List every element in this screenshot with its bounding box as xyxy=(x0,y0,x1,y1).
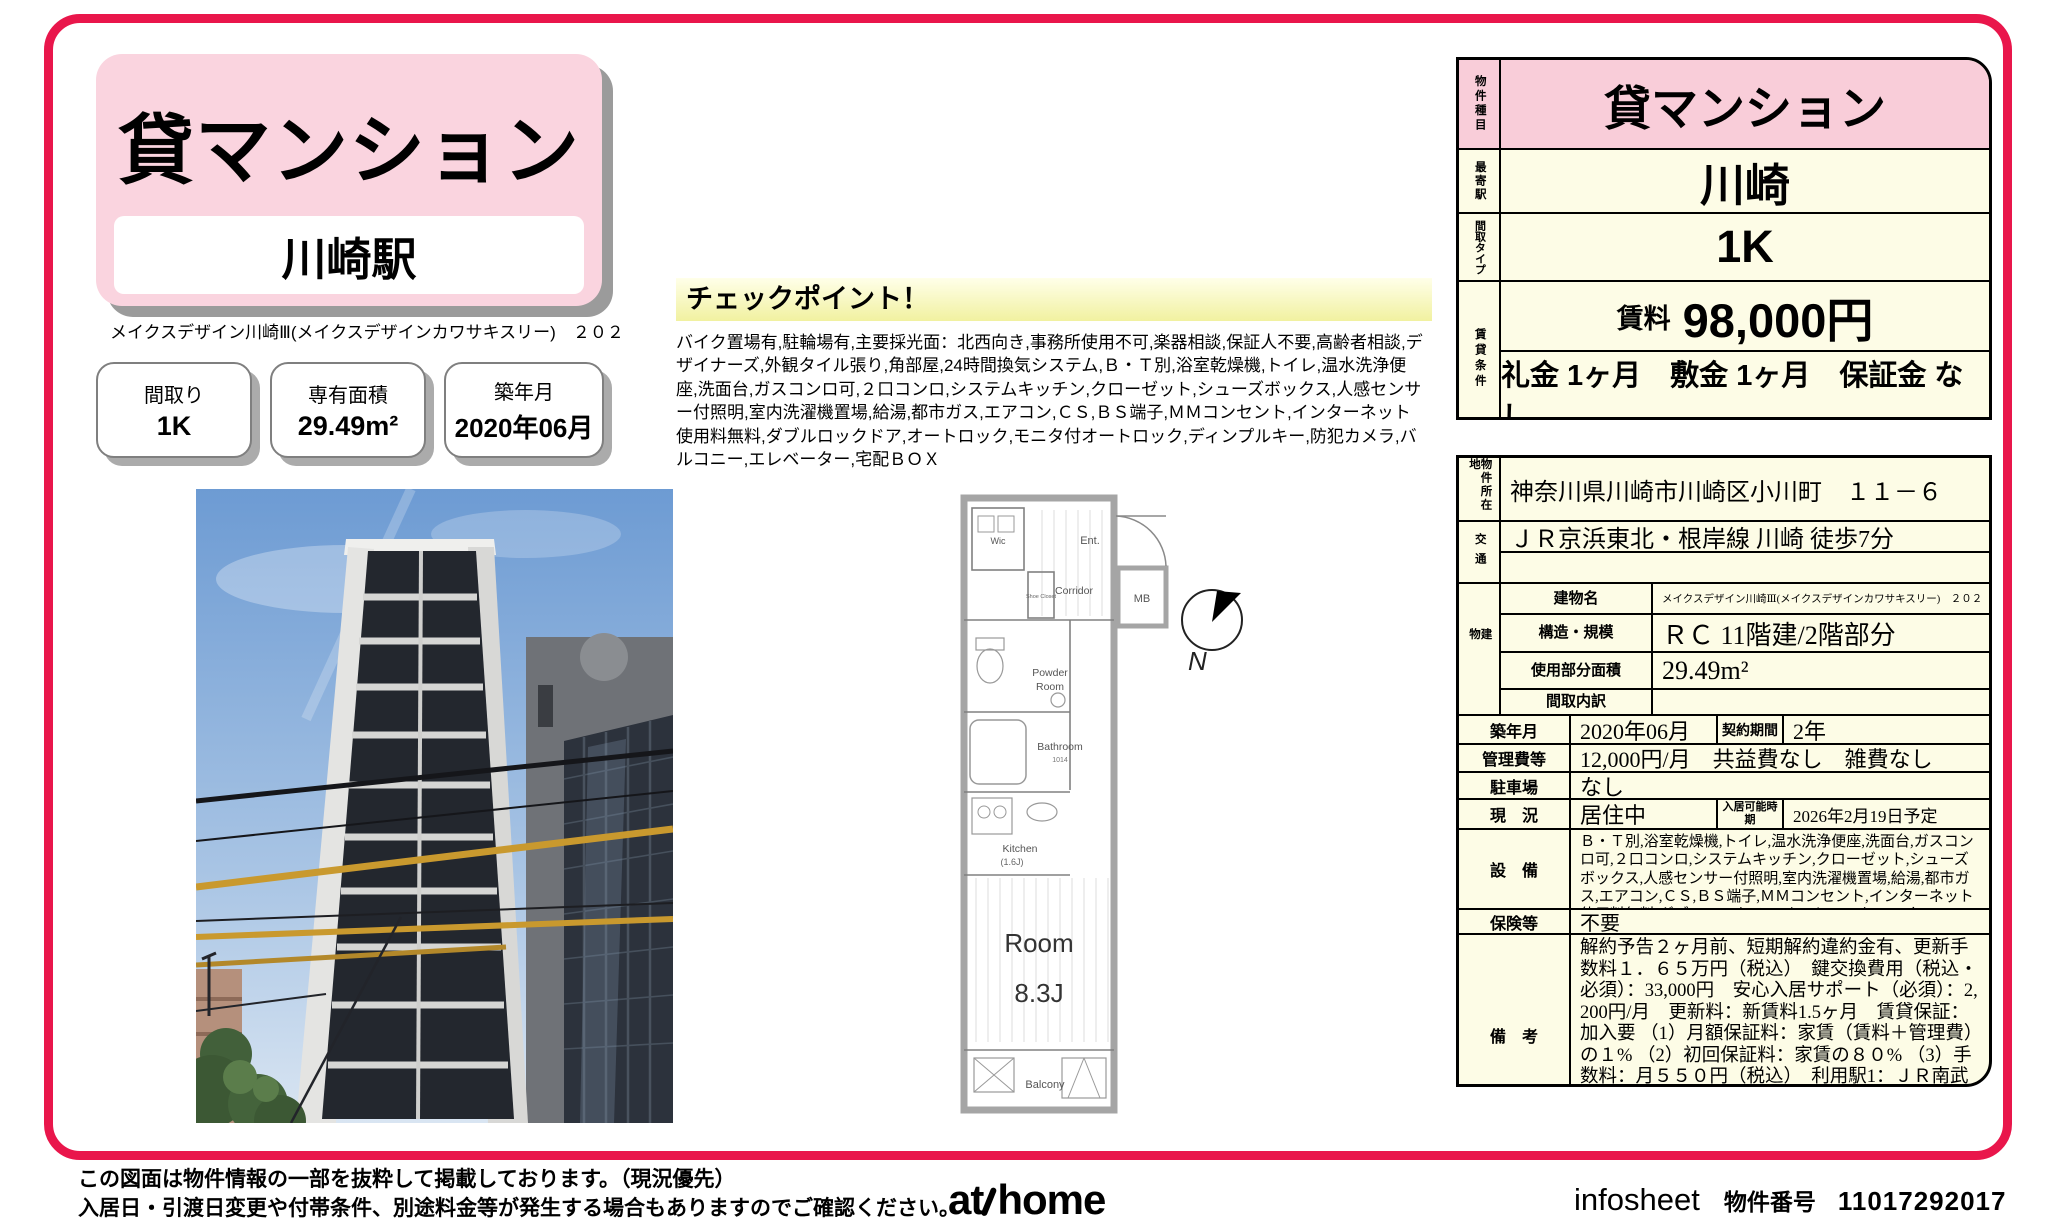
checkpoint-body: バイク置場有,駐輪場有,主要採光面：北西向き,事務所使用不可,楽器相談,保証人不… xyxy=(676,331,1424,472)
layout-detail-value xyxy=(1653,690,1989,714)
spec-box-area: 専有面積 29.49m² xyxy=(270,362,426,458)
spec-value: 1K xyxy=(157,411,192,442)
structure-value: ＲＣ 11階建/2階部分 xyxy=(1653,615,1989,651)
logo-home: home xyxy=(997,1176,1105,1222)
summary-table: 物件種目 貸マンション 最寄駅 川崎 間取タイプ 1K 賃貸条件 賃料 98,0… xyxy=(1456,57,1992,420)
row-notes: 備 考 解約予告２ヶ月前、短期解約違約金有、更新手数料１．６５万円（税込） 鍵交… xyxy=(1459,933,1989,1087)
floorplan-kitchen-label: Kitchen xyxy=(1002,843,1037,855)
disclaimer-line-2: 入居日・引渡日変更や付帯条件、別途料金等が発生する場合もありますのでご確認くださ… xyxy=(78,1195,960,1222)
access-line-2 xyxy=(1501,553,1989,582)
row-address: 物件所在地 神奈川県川崎市川崎区小川町 １１－６ xyxy=(1459,458,1989,520)
spec-label: 専有面積 xyxy=(308,379,388,408)
row-used-area: 使用部分面積 29.49m² xyxy=(1501,651,1989,688)
summary-type-label-cell: 物件種目 xyxy=(1459,60,1501,148)
summary-rent-row: 賃料 98,000円 xyxy=(1501,280,1989,350)
row-layout-detail: 間取内訳 xyxy=(1501,688,1989,714)
building-name-value: メイクスデザイン川崎Ⅲ(メイクスデザインカワサキスリー) ２０２ xyxy=(1653,584,1989,613)
summary-station-value: 川崎 xyxy=(1501,148,1989,212)
row-equipment: 設 備 Ｂ・Ｔ別,浴室乾燥機,トイレ,温水洗浄便座,洗面台,ガスコンロ可,２口コ… xyxy=(1459,828,1989,908)
row-building-group: 建物 建物名 メイクスデザイン川崎Ⅲ(メイクスデザインカワサキスリー) ２０２ … xyxy=(1459,582,1989,714)
floorplan: MB Wic Shoe xyxy=(950,480,1260,1128)
floorplan-bathroom-label: Bathroom xyxy=(1037,741,1083,753)
notes-label: 備 考 xyxy=(1459,935,1571,1087)
summary-terms-label: 賃貸条件 xyxy=(1473,328,1485,390)
spec-value: 29.49m² xyxy=(298,411,399,442)
status-label: 現 況 xyxy=(1459,800,1571,828)
floorplan-entrance-label: Ent. xyxy=(1080,535,1100,547)
athome-logo: at home xyxy=(948,1176,1105,1222)
disclaimer-line-1: この図面は物件情報の一部を抜粋して掲載しております。（現況優先） xyxy=(78,1166,960,1195)
summary-layout-label-cell: 間取タイプ xyxy=(1459,212,1501,280)
rent-label: 賃料 xyxy=(1617,297,1671,336)
floorplan-kitchen-size: (1.6J) xyxy=(1000,857,1023,867)
building-photo xyxy=(196,489,673,1123)
equipment-value: Ｂ・Ｔ別,浴室乾燥機,トイレ,温水洗浄便座,洗面台,ガスコンロ可,２口コンロ,シ… xyxy=(1571,830,1989,908)
notes-value: 解約予告２ヶ月前、短期解約違約金有、更新手数料１．６５万円（税込） 鍵交換費用（… xyxy=(1571,935,1989,1087)
station-box: 川崎駅 xyxy=(114,216,584,294)
address-label: 物件所在地 xyxy=(1468,458,1491,520)
spec-label: 間取り xyxy=(144,379,204,408)
movein-value: 2026年2月19日予定 xyxy=(1784,800,1989,828)
building-group-label: 建物 xyxy=(1468,584,1491,714)
floorplan-room-label: Room xyxy=(1004,928,1073,958)
summary-terms-label-cell: 賃貸条件 xyxy=(1459,280,1501,420)
floorplan-shoe-closet-label: Shoe Closet xyxy=(1026,594,1056,600)
row-access: 交通 ＪＲ京浜東北・根岸線 川崎 徒歩7分 xyxy=(1459,520,1989,582)
spec-box-layout: 間取り 1K xyxy=(96,362,252,458)
footer-disclaimer: この図面は物件情報の一部を抜粋して掲載しております。（現況優先） 入居日・引渡日… xyxy=(78,1166,960,1222)
summary-layout-value: 1K xyxy=(1501,212,1989,280)
infosheet-wordmark: infosheet xyxy=(1574,1182,1700,1218)
property-number-group: 物件番号 11017292017 xyxy=(1722,1183,2015,1222)
floorplan-room-size: 8.3J xyxy=(1014,978,1063,1008)
floorplan-wic-label: Wic xyxy=(991,536,1006,546)
compass-n-label: N xyxy=(1188,646,1207,676)
summary-type-label: 物件種目 xyxy=(1473,75,1485,133)
parking-value: なし xyxy=(1571,773,1989,798)
property-infosheet: 貸マンション 川崎駅 メイクスデザイン川崎Ⅲ(メイクスデザインカワサキスリー) … xyxy=(0,0,2056,1222)
logo-at: at xyxy=(948,1176,983,1222)
row-built: 築年月 2020年06月 契約期間 2年 xyxy=(1459,714,1989,743)
floorplan-powder-label-1: Powder xyxy=(1032,667,1068,679)
floorplan-bathroom-size: 1014 xyxy=(1052,757,1068,764)
used-area-label: 使用部分面積 xyxy=(1501,653,1653,688)
infosheet-footer: infosheet 物件番号 11017292017 xyxy=(1574,1182,2014,1222)
checkpoint-title: チェックポイント！ xyxy=(676,278,1432,321)
compass-icon: N xyxy=(1182,590,1242,676)
contract-label: 契約期間 xyxy=(1716,716,1784,743)
property-category-title: 貸マンション xyxy=(96,64,602,224)
row-structure: 構造・規模 ＲＣ 11階建/2階部分 xyxy=(1501,613,1989,651)
used-area-value: 29.49m² xyxy=(1653,653,1989,688)
row-fees: 管理費等 12,000円/月 共益費なし 雑費なし xyxy=(1459,743,1989,771)
status-value: 居住中 xyxy=(1571,800,1716,828)
floorplan-corridor-label: Corridor xyxy=(1055,585,1093,597)
row-building-name: 建物名 メイクスデザイン川崎Ⅲ(メイクスデザインカワサキスリー) ２０２ xyxy=(1501,584,1989,613)
address-value: 神奈川県川崎市川崎区小川町 １１－６ xyxy=(1501,458,1989,520)
summary-station-label: 最寄駅 xyxy=(1473,161,1485,202)
contract-value: 2年 xyxy=(1784,716,1989,743)
property-number-label: 物件番号 xyxy=(1724,1183,1816,1217)
movein-label: 入居可能時期 xyxy=(1716,800,1784,828)
fees-label: 管理費等 xyxy=(1459,745,1571,771)
row-insurance: 保険等 不要 xyxy=(1459,908,1989,933)
property-number-value: 11017292017 xyxy=(1838,1186,2007,1217)
structure-label: 構造・規模 xyxy=(1501,615,1653,651)
station-name: 川崎駅 xyxy=(281,223,416,288)
title-card: 貸マンション 川崎駅 xyxy=(96,54,602,306)
access-label: 交通 xyxy=(1473,533,1485,572)
equipment-label: 設 備 xyxy=(1459,830,1571,908)
layout-detail-label: 間取内訳 xyxy=(1501,690,1653,714)
floorplan-mb-label: MB xyxy=(1134,593,1151,605)
summary-terms-value: 礼金 1ヶ月 敷金 1ヶ月 保証金 なし xyxy=(1501,350,1989,420)
insurance-value: 不要 xyxy=(1571,910,1989,933)
insurance-label: 保険等 xyxy=(1459,910,1571,933)
built-label: 築年月 xyxy=(1459,716,1571,743)
floorplan-powder-label-2: Room xyxy=(1036,681,1064,693)
access-line-1: ＪＲ京浜東北・根岸線 川崎 徒歩7分 xyxy=(1501,522,1989,551)
fees-value: 12,000円/月 共益費なし 雑費なし xyxy=(1571,745,1989,771)
summary-type-value: 貸マンション xyxy=(1501,60,1989,148)
parking-label: 駐車場 xyxy=(1459,773,1571,798)
row-status: 現 況 居住中 入居可能時期 2026年2月19日予定 xyxy=(1459,798,1989,828)
built-value: 2020年06月 xyxy=(1571,716,1716,743)
floorplan-balcony-label: Balcony xyxy=(1025,1079,1065,1091)
spec-value: 2020年06月 xyxy=(455,408,594,445)
spec-box-built: 築年月 2020年06月 xyxy=(444,362,604,458)
summary-station-label-cell: 最寄駅 xyxy=(1459,148,1501,212)
rent-value: 98,000円 xyxy=(1683,282,1874,351)
summary-layout-label: 間取タイプ xyxy=(1474,220,1485,275)
building-name-label: 建物名 xyxy=(1501,584,1653,613)
spec-label: 築年月 xyxy=(494,376,554,405)
detail-table: 物件所在地 神奈川県川崎市川崎区小川町 １１－６ 交通 ＪＲ京浜東北・根岸線 川… xyxy=(1456,455,1992,1087)
row-parking: 駐車場 なし xyxy=(1459,771,1989,798)
building-name-line: メイクスデザイン川崎Ⅲ(メイクスデザインカワサキスリー) ２０２ xyxy=(110,318,630,343)
